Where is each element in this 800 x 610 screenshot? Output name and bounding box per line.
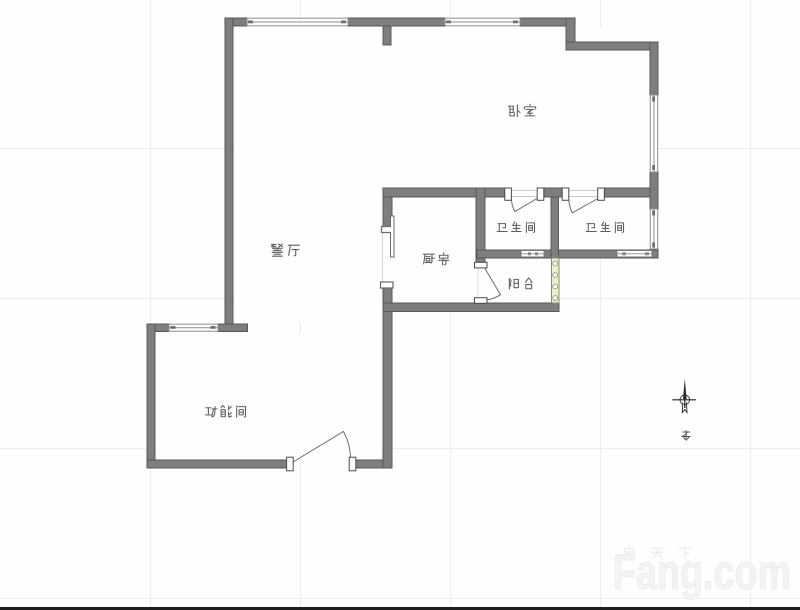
- svg-text:Fang.com: Fang.com: [613, 544, 791, 600]
